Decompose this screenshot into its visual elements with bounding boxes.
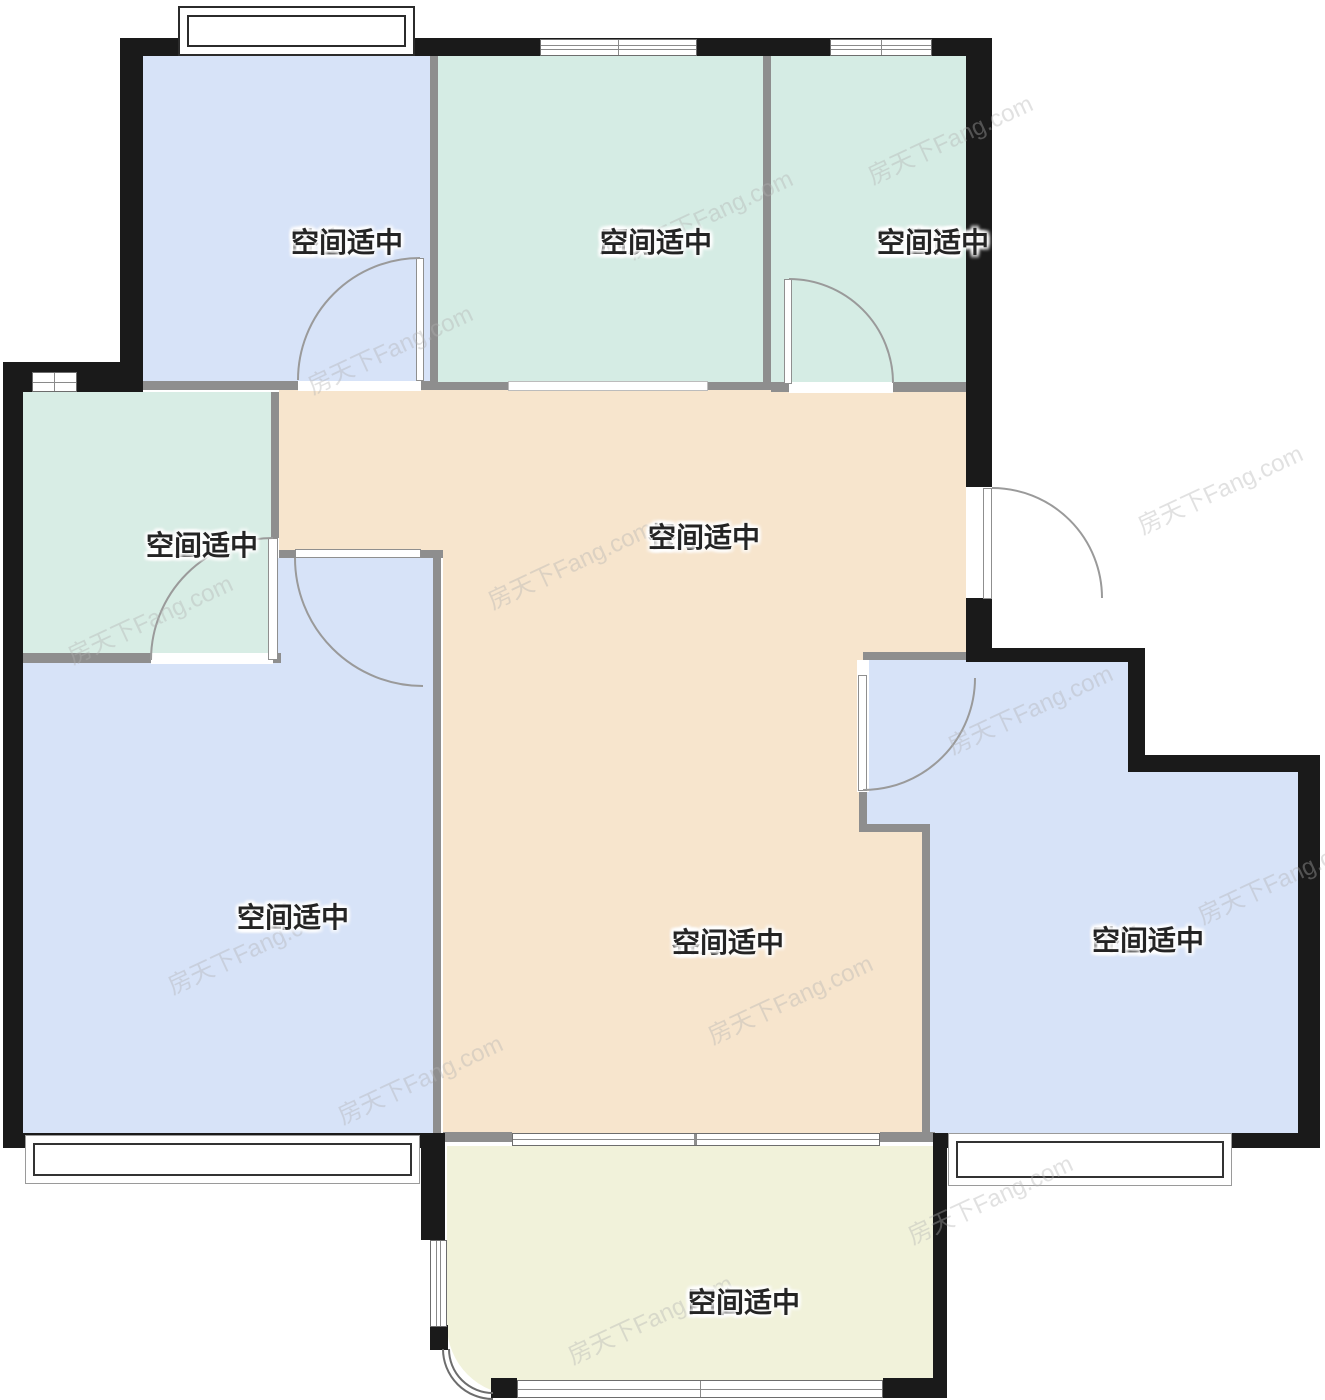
opening-bathroom-door	[789, 382, 893, 393]
wall-balcony-corner-left	[491, 1378, 517, 1398]
window-bedroom-b	[948, 1133, 1232, 1186]
room-note: 空间适中	[688, 1284, 800, 1322]
watermark: 房天下Fang.com	[1131, 434, 1308, 541]
wall-master-bath-right	[271, 392, 279, 538]
door-leaf-bathroom	[784, 279, 792, 384]
window-master-bedroom-inner	[33, 1143, 412, 1176]
wall-master-top-left	[279, 550, 295, 558]
door-leaf-bedroom-b	[858, 675, 867, 791]
window-master-bedroom	[25, 1135, 420, 1184]
room-fill-balcony	[447, 1146, 933, 1395]
wall-balcony-right	[933, 1146, 947, 1398]
room-fill-bedroom-b-1	[867, 660, 1128, 832]
room-fill-kitchen	[438, 56, 763, 382]
room-note: 空间适中	[1092, 922, 1204, 960]
room-fill-bathroom	[771, 56, 966, 382]
wall-balcony-left	[421, 1133, 445, 1240]
wall-balcony-top-right	[880, 1132, 935, 1142]
wall-exterior-right-lower	[1298, 755, 1320, 1148]
wall-bedroom-a-kitchen	[430, 56, 438, 382]
room-fill-living-1	[443, 652, 863, 1133]
wall-exterior-step2	[1128, 648, 1145, 772]
room-note: 空间适中	[600, 224, 712, 262]
wall-bedroom-b-step	[859, 824, 930, 832]
opening-master-bath-door	[151, 653, 273, 664]
window-balcony-bottom	[517, 1380, 883, 1398]
door-leaf-master-bath	[268, 538, 278, 660]
room-note: 空间适中	[648, 519, 760, 557]
door-arc-entry	[992, 488, 1102, 598]
room-note: 空间适中	[877, 224, 989, 262]
door-leaf-bedroom-a	[416, 258, 424, 381]
room-fill-bedroom-b-3	[922, 832, 1128, 1133]
room-fill-living-2	[863, 832, 922, 1133]
wall-kitchen-bottom-left	[433, 382, 508, 390]
window-kitchen	[540, 39, 697, 56]
room-fill-dining-1	[279, 390, 966, 558]
room-note: 空间适中	[146, 527, 258, 565]
opening-kitchen-pass	[508, 381, 708, 391]
wall-exterior-left-upper	[120, 38, 143, 362]
wall-exterior-right-upper	[966, 38, 992, 487]
room-note: 空间适中	[672, 924, 784, 962]
wall-exterior-bedroom-b-top	[1128, 755, 1320, 772]
opening-bedroom-a-door	[298, 381, 421, 391]
room-fill-dining-2	[443, 558, 966, 652]
room-fill-master-bath	[23, 392, 271, 655]
wall-kitchen-bathroom	[763, 56, 771, 382]
window-bathroom	[830, 39, 932, 56]
wall-bathroom-bottom-right	[893, 382, 966, 392]
window-master-bath	[32, 372, 77, 392]
window-balcony-left	[430, 1240, 447, 1327]
wall-balcony-corner-right	[883, 1378, 933, 1398]
floor-plan: 房天下Fang.com 房天下Fang.com 房天下Fang.com 房天下F…	[0, 0, 1325, 1400]
wall-exterior-left	[3, 392, 23, 1148]
wall-master-living	[433, 558, 441, 1133]
room-note: 空间适中	[237, 899, 349, 937]
wall-bedroom-a-bottom-left	[140, 381, 298, 390]
window-bedroom-a-bay-inner	[187, 15, 406, 47]
wall-master-top-right	[421, 550, 443, 558]
sliding-door-living-balcony	[512, 1133, 880, 1146]
door-leaf-master-bedroom	[295, 549, 421, 558]
window-bedroom-b-inner	[956, 1141, 1224, 1178]
window-bedroom-a-bay	[178, 6, 415, 56]
door-leaf-entry	[983, 488, 992, 599]
room-fill-bedroom-a	[143, 56, 430, 381]
sliding-door-divider	[694, 1134, 696, 1145]
wall-balcony-post	[430, 1325, 448, 1350]
wall-balcony-top-left	[443, 1132, 512, 1142]
wall-kitchen-bottom-right	[708, 382, 771, 390]
wall-master-bath-bottom-left	[20, 653, 151, 663]
wall-exterior-entry-shelf	[966, 648, 1145, 662]
wall-bedroom-b-top	[863, 652, 980, 660]
wall-bedroom-b-living	[922, 832, 930, 1133]
room-note: 空间适中	[291, 224, 403, 262]
